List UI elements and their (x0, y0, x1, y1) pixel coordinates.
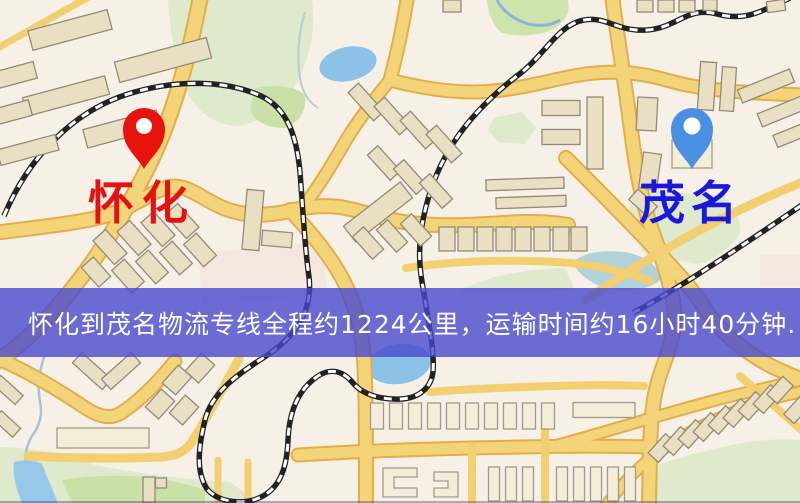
route-info-banner: 怀化到茂名物流专线全程约1224公里，运输时间约16小时40分钟. (0, 288, 800, 357)
building (557, 467, 568, 501)
building (443, 0, 461, 12)
building (496, 195, 566, 208)
building (57, 428, 149, 448)
building (658, 0, 674, 12)
origin-city-label: 怀化 (88, 176, 196, 230)
pin-dot (136, 118, 152, 134)
district-tint (760, 255, 800, 287)
building (587, 97, 603, 169)
building (156, 478, 167, 488)
building (496, 227, 512, 251)
building (523, 403, 536, 429)
building (477, 227, 493, 251)
building (766, 0, 785, 13)
building (542, 101, 580, 116)
building (458, 227, 474, 251)
building (573, 403, 635, 418)
building (506, 467, 517, 501)
building (608, 467, 619, 501)
building (719, 67, 736, 112)
building (143, 477, 155, 503)
building (466, 403, 479, 429)
building (679, 0, 695, 12)
building (636, 97, 658, 131)
building (261, 230, 292, 248)
building (534, 227, 550, 251)
building (553, 227, 569, 251)
building (390, 403, 403, 429)
building (571, 227, 587, 251)
building (542, 403, 555, 429)
building (697, 62, 716, 111)
building (409, 403, 422, 429)
building (485, 403, 498, 429)
building (637, 0, 653, 12)
building (489, 467, 500, 501)
pin-dot (684, 118, 701, 135)
building (504, 403, 517, 429)
building (428, 403, 441, 429)
building (542, 130, 580, 145)
route-info-text: 怀化到茂名物流专线全程约1224公里，运输时间约16小时40分钟. (28, 305, 796, 341)
building (371, 403, 384, 429)
building (486, 177, 564, 191)
logistics-route-map: 怀化 茂名 怀化到茂名物流专线全程约1224公里，运输时间约16小时40分钟. (0, 0, 800, 503)
map-canvas: 怀化 茂名 (0, 0, 800, 503)
building (523, 467, 534, 501)
building (574, 467, 585, 501)
building (703, 0, 717, 11)
building (591, 467, 602, 501)
building (439, 227, 455, 251)
building (625, 467, 636, 501)
destination-city-label: 茂名 (639, 176, 743, 230)
building (515, 227, 531, 251)
building (447, 403, 460, 429)
